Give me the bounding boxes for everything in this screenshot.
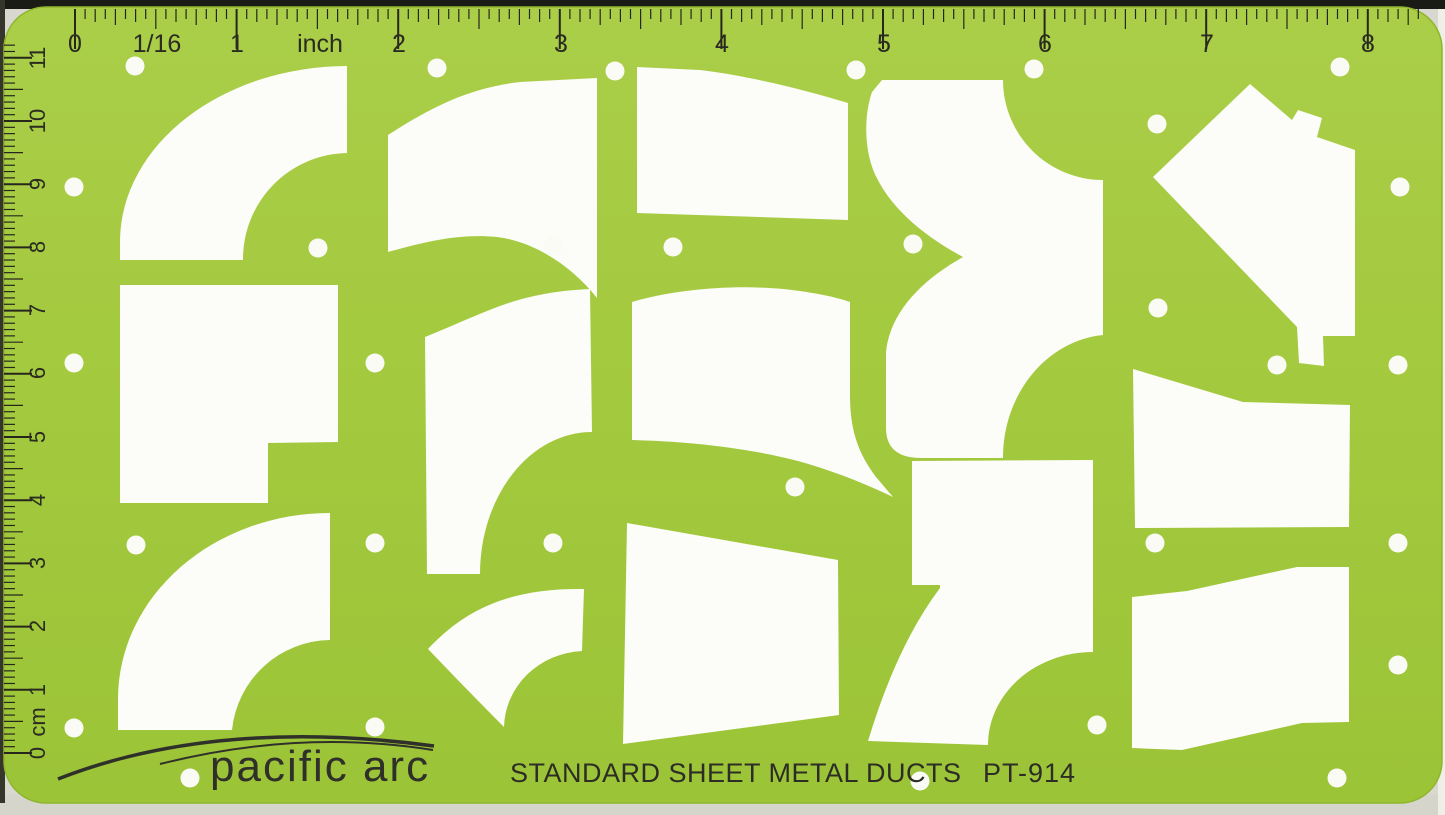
registration-hole [606,62,625,81]
registration-hole [1389,656,1408,675]
cm-ruler-label: 7 [25,304,50,316]
stencil-graphic: 01/161inch2345678 0cm1234567891011 [0,0,1445,815]
cm-ruler-label: 6 [25,367,50,379]
brand-logo-text: pacific arc [210,742,430,792]
registration-hole [786,478,805,497]
registration-hole [366,534,385,553]
inch-ruler-label: 3 [554,30,568,58]
cm-ruler-label: 8 [25,241,50,253]
cm-ruler-label: 0 [25,747,50,759]
registration-hole [1391,178,1410,197]
registration-hole [1268,356,1287,375]
cm-ruler-label: 9 [25,178,50,190]
registration-hole [544,534,563,553]
cm-ruler-label: 2 [25,620,50,632]
registration-hole [664,238,683,257]
cm-ruler-label: 4 [25,494,50,506]
registration-hole [1389,534,1408,553]
registration-hole [1025,60,1044,79]
registration-hole [904,235,923,254]
cutout-zigzag-offset-right-lower [1132,567,1349,750]
registration-hole [366,354,385,373]
inch-ruler-label: inch [297,30,343,58]
cutout-taper-transition-large [623,523,839,744]
registration-hole [847,61,866,80]
cm-ruler-label: 10 [25,109,50,133]
inch-ruler-label: 0 [68,30,82,58]
inch-ruler-label: 8 [1361,30,1375,58]
inch-ruler-label: 2 [392,30,406,58]
product-title: STANDARD SHEET METAL DUCTS [510,758,962,789]
registration-hole [544,237,563,256]
registration-hole [1146,534,1165,553]
registration-hole [1389,356,1408,375]
inch-ruler-label: 5 [877,30,891,58]
registration-hole [65,354,84,373]
registration-hole [181,769,200,788]
inch-ruler-label: 7 [1200,30,1214,58]
cm-ruler-label: 11 [25,47,50,70]
registration-hole [65,719,84,738]
registration-hole [127,536,146,555]
inch-ruler-label: 1 [230,30,244,58]
registration-hole [1331,58,1350,77]
registration-hole [1148,115,1167,134]
cm-ruler-label: 3 [25,557,50,569]
registration-hole [1149,299,1168,318]
cm-ruler-label: cm [25,707,50,736]
registration-hole [309,239,328,258]
cm-ruler-label: 5 [25,431,50,443]
registration-hole [65,178,84,197]
registration-hole [366,718,385,737]
inch-ruler-label: 1/16 [133,30,182,58]
registration-hole [126,57,145,76]
registration-hole [1088,716,1107,735]
model-number: PT-914 [983,758,1076,789]
cm-ruler-label: 1 [25,684,50,696]
registration-hole [428,59,447,78]
inch-ruler-label: 6 [1038,30,1052,58]
inch-ruler-label: 4 [715,30,729,58]
template-photo: 01/161inch2345678 0cm1234567891011 pacif… [0,0,1445,815]
registration-hole [1328,769,1347,788]
